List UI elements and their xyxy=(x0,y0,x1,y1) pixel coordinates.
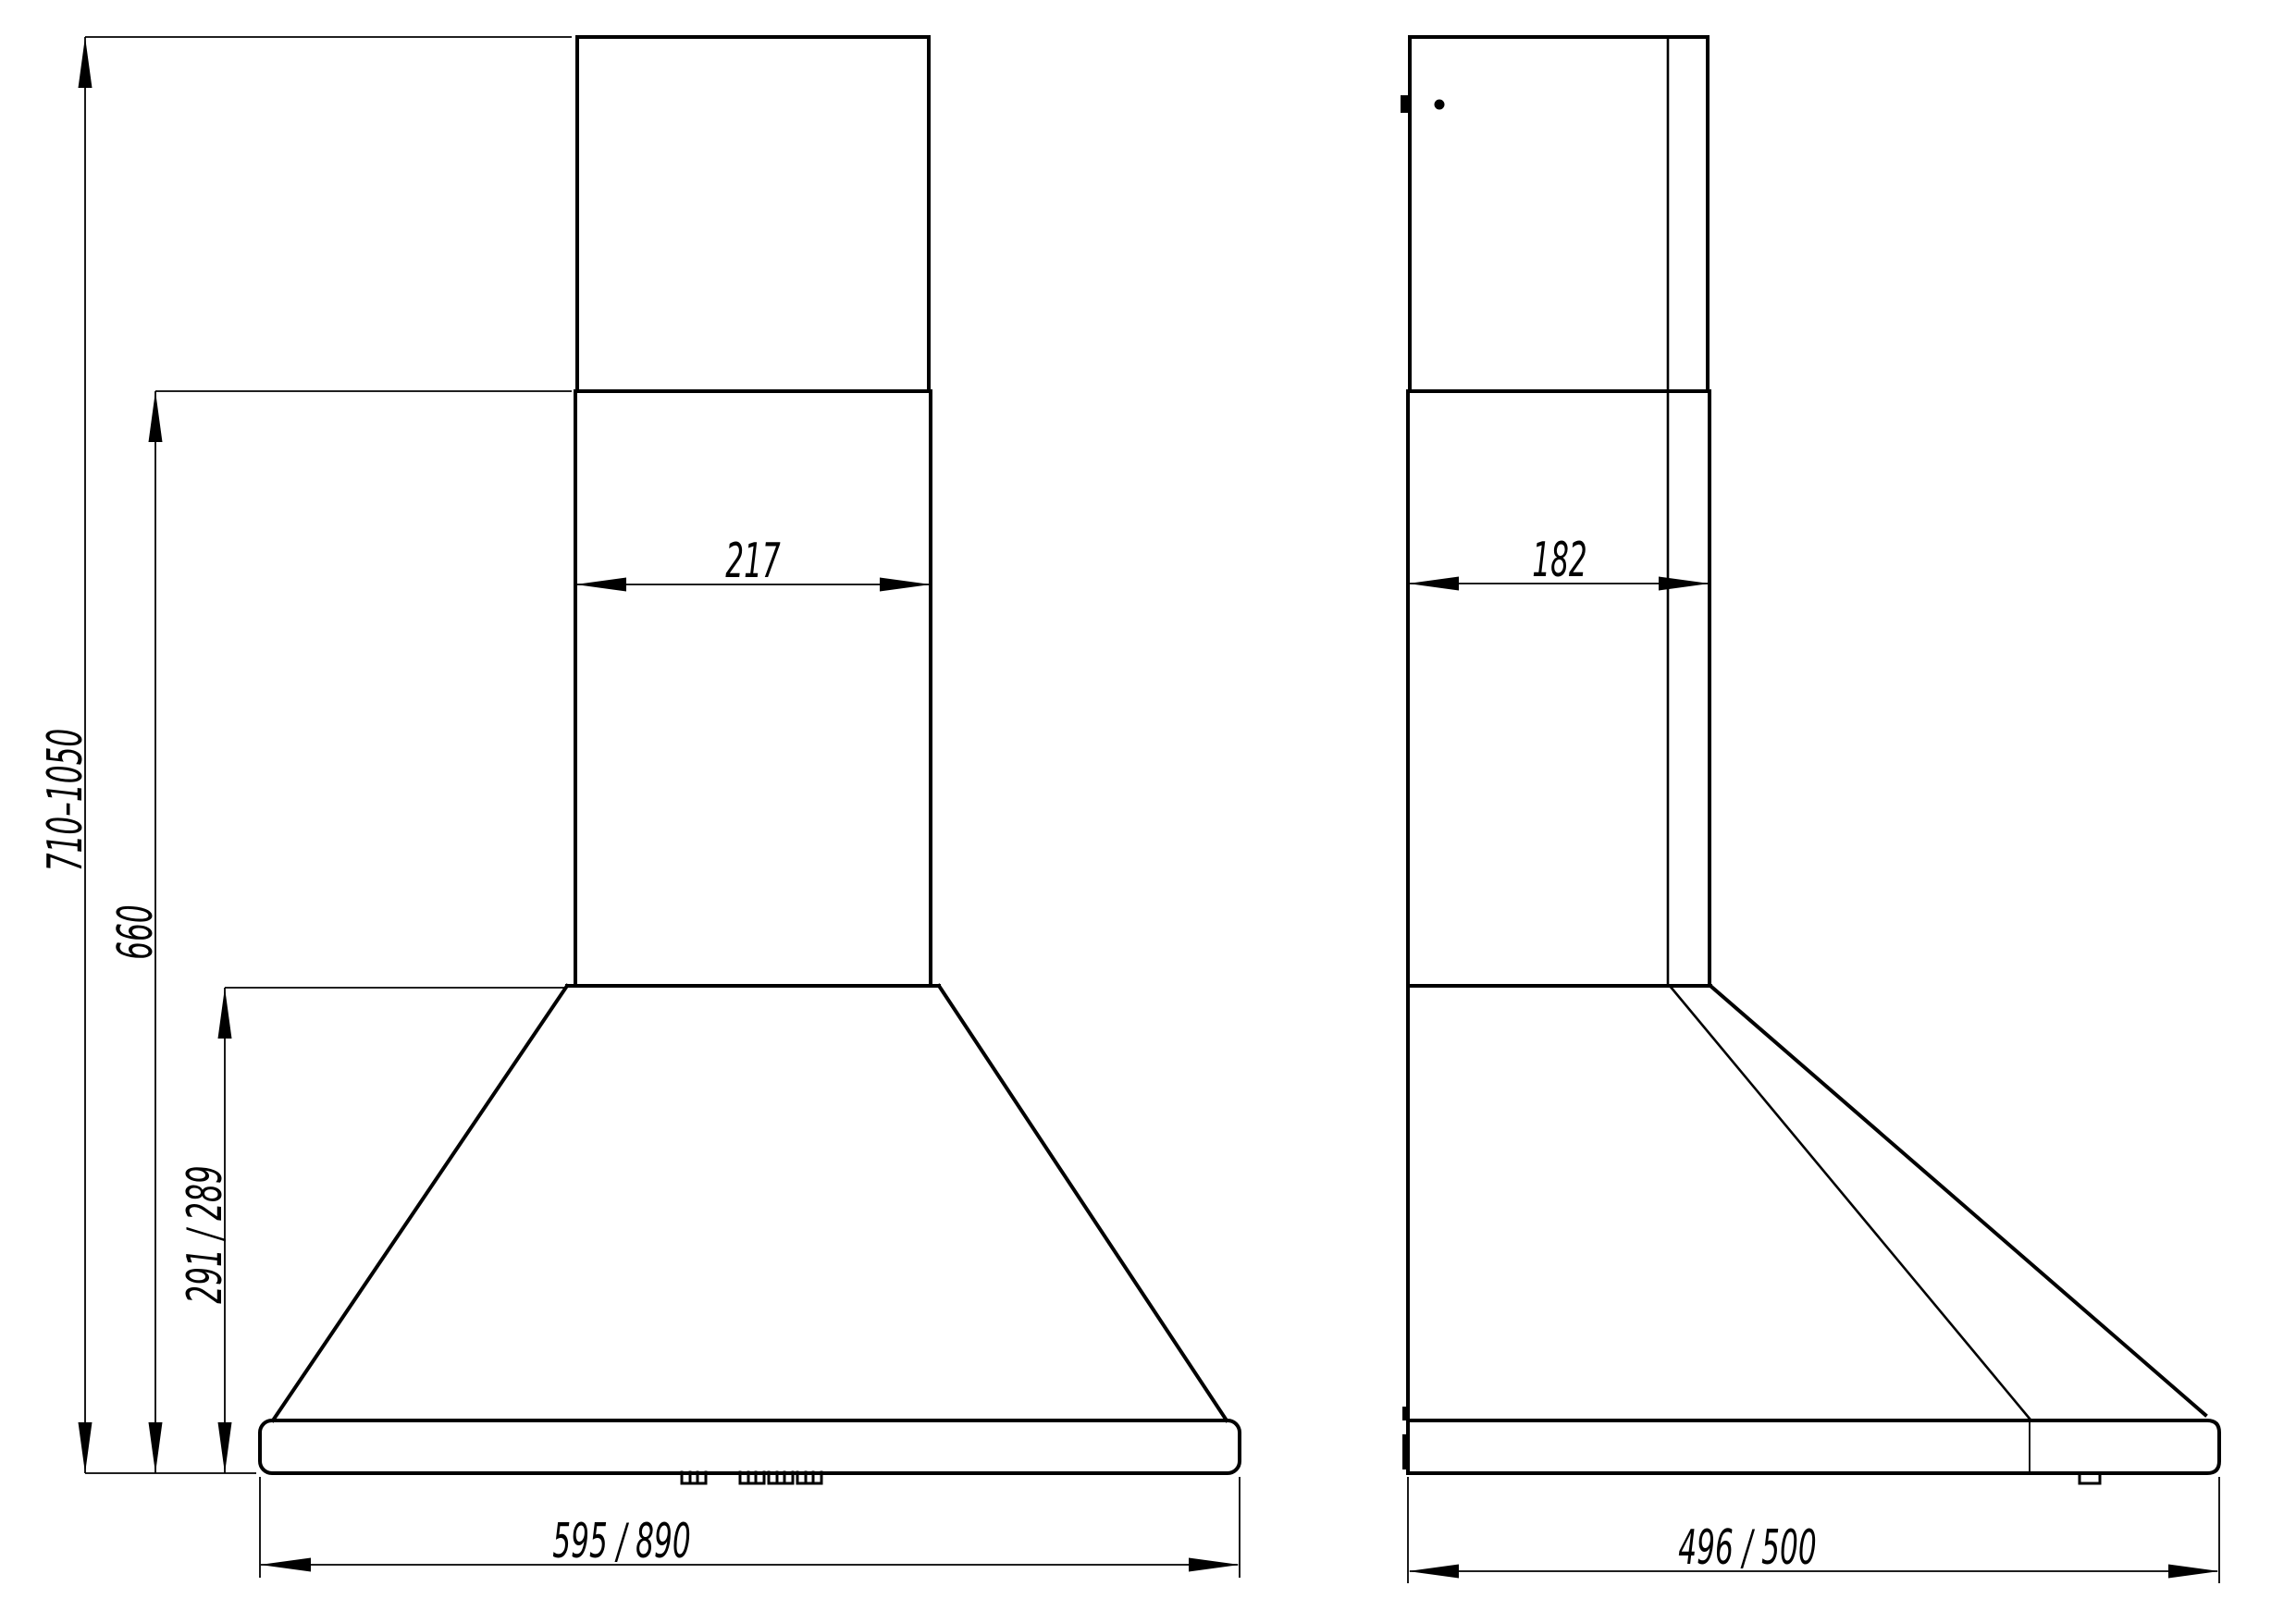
side-view: 182 496 / 500 xyxy=(1401,37,2219,1583)
drawing-sheet: 217 595 / 890 710–1050 660 291 / 289 xyxy=(0,0,2296,1623)
front-upper-chimney-outline xyxy=(577,37,929,391)
arrow-left-icon xyxy=(575,578,626,592)
arrow-left-icon xyxy=(260,1558,311,1572)
front-canopy-height-label: 291 / 289 xyxy=(178,1165,234,1303)
arrow-down-icon xyxy=(79,1422,93,1473)
arrow-up-icon xyxy=(218,988,232,1039)
front-canopy-right-slope xyxy=(939,986,1227,1420)
wall-hook-lower xyxy=(1402,1434,1408,1469)
arrow-down-icon xyxy=(149,1422,163,1473)
wall-bracket-tab xyxy=(1401,95,1408,113)
arrow-up-icon xyxy=(149,391,163,442)
front-chimney-width-label: 217 xyxy=(725,534,781,590)
front-height-range-label: 710–1050 xyxy=(38,729,94,872)
arrow-right-icon xyxy=(2168,1565,2219,1579)
front-canopy-left-slope xyxy=(273,986,567,1420)
wall-hook-upper xyxy=(1402,1407,1408,1420)
front-height-to-canopy-label: 660 xyxy=(108,904,165,960)
arrow-right-icon xyxy=(1189,1558,1240,1572)
hood-dimension-drawing: 217 595 / 890 710–1050 660 291 / 289 xyxy=(0,0,2296,1623)
front-base-body xyxy=(260,1420,1240,1473)
mounting-hole-dot xyxy=(1435,100,1445,110)
front-view: 217 595 / 890 710–1050 660 291 / 289 xyxy=(38,37,1240,1578)
side-base-body xyxy=(1408,1420,2219,1473)
side-body-depth-label: 496 / 500 xyxy=(1678,1520,1816,1577)
side-chimney-depth-label: 182 xyxy=(1532,533,1587,589)
arrow-up-icon xyxy=(79,37,93,88)
arrow-left-icon xyxy=(1408,577,1459,591)
arrow-down-icon xyxy=(218,1422,232,1473)
arrow-right-icon xyxy=(1659,577,1710,591)
arrow-right-icon xyxy=(880,578,931,592)
front-body-width-label: 595 / 890 xyxy=(552,1514,690,1570)
arrow-left-icon xyxy=(1408,1565,1459,1579)
side-canopy-front-slope xyxy=(1710,986,2205,1415)
side-canopy-inner-slope xyxy=(1670,986,2030,1419)
